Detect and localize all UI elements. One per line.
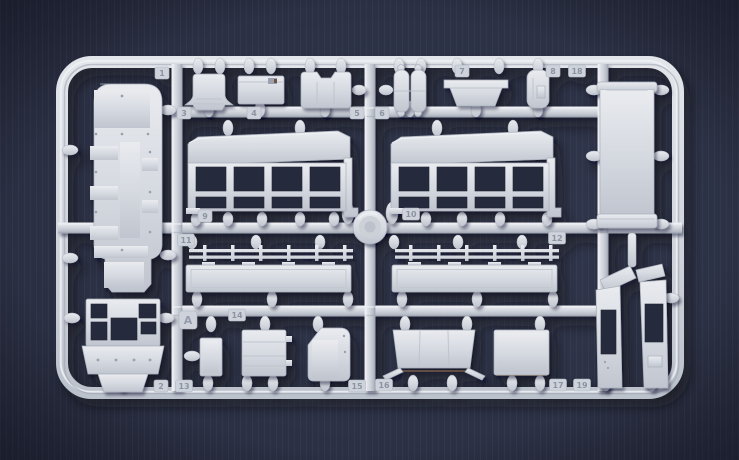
- svg-text:A: A: [184, 314, 193, 327]
- part-4-panel: [238, 76, 284, 104]
- part-number-tag: 4: [247, 107, 261, 119]
- svg-text:13: 13: [178, 382, 189, 391]
- part-number-tag: 19: [574, 379, 591, 391]
- part-13-ribbed-box: [200, 338, 222, 376]
- part-12-handrail-and-bench-base: [392, 245, 559, 292]
- part-11-handrail-and-bench-base: [186, 245, 353, 292]
- part-8-small-seat: [527, 70, 549, 108]
- part-number-tag: 17: [550, 379, 567, 391]
- part-number-tag: 1: [155, 67, 169, 79]
- part-number-tag: 14: [229, 309, 246, 321]
- part-number-tag: 9: [198, 210, 212, 222]
- part-14-equipment-box: [242, 330, 292, 376]
- svg-text:10: 10: [405, 210, 417, 219]
- svg-text:19: 19: [576, 381, 588, 390]
- part-number-tag: 12: [549, 232, 566, 244]
- part-17-ribbed-seat-panel: [494, 330, 549, 376]
- part-9-side-panel-with-windows: [186, 131, 358, 217]
- part-number-tag: 5: [350, 107, 364, 119]
- svg-text:16: 16: [378, 381, 390, 390]
- part-number-tag: 3: [177, 107, 191, 119]
- svg-text:14: 14: [231, 311, 243, 320]
- part-number-tag: 7: [455, 65, 469, 77]
- svg-text:5: 5: [354, 109, 360, 118]
- svg-text:6: 6: [379, 109, 385, 118]
- svg-text:7: 7: [459, 67, 465, 76]
- svg-text:1: 1: [159, 69, 165, 78]
- part-10-side-panel-with-windows: [389, 131, 561, 217]
- part-18-ribbed-roof-panel: [597, 82, 657, 228]
- part-number-tag: 11: [178, 234, 195, 246]
- svg-text:15: 15: [351, 382, 363, 391]
- injection-point: [353, 210, 387, 244]
- svg-text:2: 2: [158, 382, 164, 391]
- sprue-letter-tag: A: [179, 311, 197, 329]
- part-number-tag: 13: [176, 380, 193, 392]
- svg-text:17: 17: [552, 381, 563, 390]
- part-number-tag: 6: [375, 107, 389, 119]
- svg-text:4: 4: [251, 109, 257, 118]
- svg-text:9: 9: [202, 212, 208, 221]
- model-kit-sprue-photo: 1 3 4 5 6 7 8 18 9 10 11 12 A 14 2 13 15…: [0, 0, 739, 460]
- part-number-tag: 15: [349, 380, 366, 392]
- part-number-tag: 2: [154, 380, 168, 392]
- part-number-tag: 8: [546, 65, 560, 77]
- svg-text:8: 8: [550, 67, 556, 76]
- svg-text:11: 11: [180, 236, 192, 245]
- svg-text:18: 18: [571, 67, 583, 76]
- part-number-tag: 18: [569, 65, 586, 77]
- svg-text:12: 12: [551, 234, 562, 243]
- svg-text:3: 3: [181, 109, 187, 118]
- sprue-photo-canvas: 1 3 4 5 6 7 8 18 9 10 11 12 A 14 2 13 15…: [0, 0, 739, 460]
- part-number-tag: 10: [403, 208, 420, 220]
- part-number-tag: 16: [376, 379, 393, 391]
